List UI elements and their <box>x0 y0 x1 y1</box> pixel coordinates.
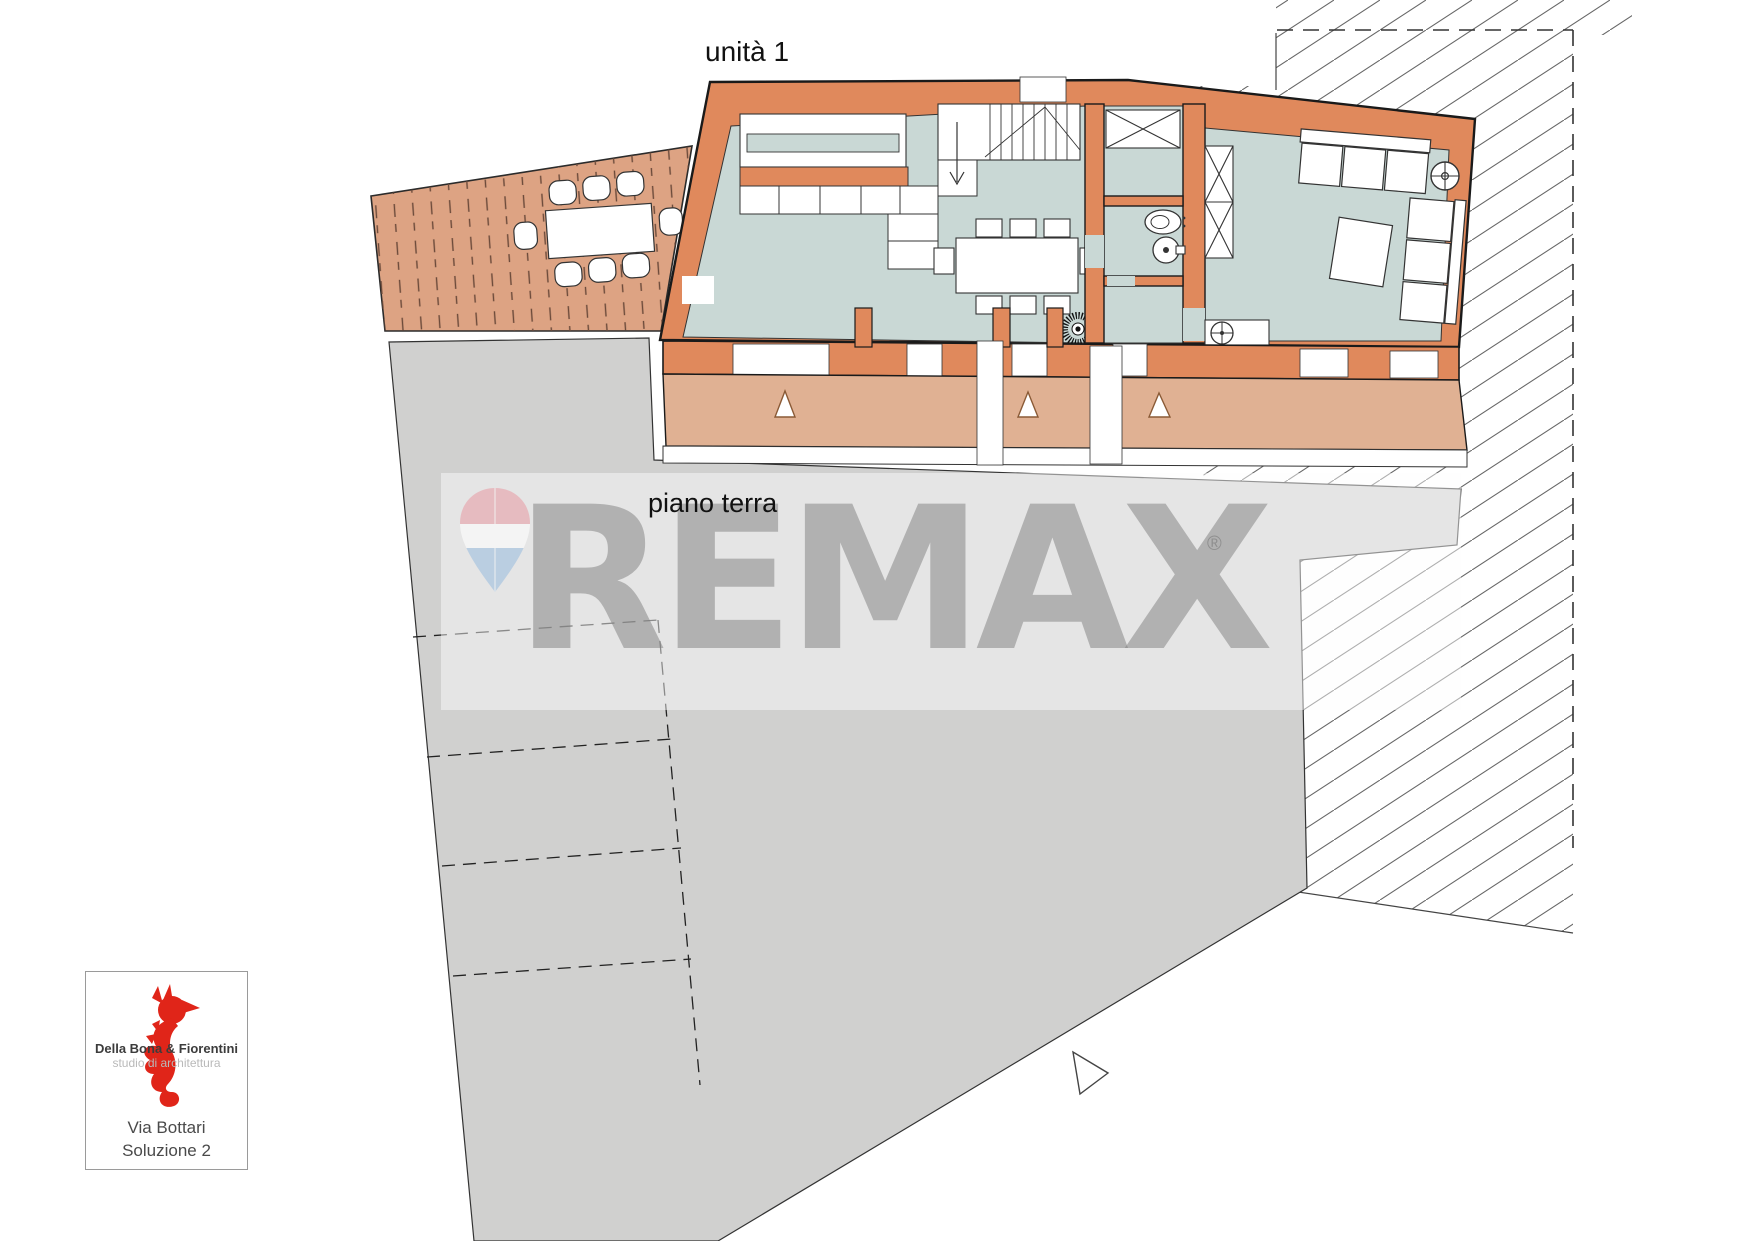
tall-wardrobe-icon <box>1205 146 1233 258</box>
architect-logo-box: Della Bona & Fiorentini studio di archit… <box>85 971 248 1170</box>
project-solution: Soluzione 2 <box>86 1141 247 1161</box>
coffee-table-icon <box>1329 217 1392 287</box>
terrace-step-2 <box>1090 346 1122 464</box>
deck-door-opening <box>682 276 714 304</box>
top-window-opening <box>1020 77 1066 102</box>
wood-deck <box>371 146 692 331</box>
ceiling-fan-icon <box>1431 162 1459 190</box>
door-opening-hall <box>1085 235 1104 268</box>
kitchen-top-counter <box>740 114 908 186</box>
north-triangle-icon <box>1073 1052 1108 1094</box>
door-opening-living <box>1183 308 1205 341</box>
sofa-icon <box>1297 129 1431 194</box>
wardrobe-icon <box>1106 110 1180 148</box>
floor-label: piano terra <box>648 488 777 519</box>
registered-mark: ® <box>1207 533 1222 556</box>
unit-label: unità 1 <box>705 36 789 68</box>
door-opening-bath <box>1107 276 1135 286</box>
project-street: Via Bottari <box>86 1118 247 1138</box>
sofa-right-icon <box>1400 196 1466 324</box>
floor-drain-icon <box>1211 322 1233 344</box>
studio-name: Della Bona & Fiorentini <box>86 1041 247 1056</box>
shelf-with-drain <box>1205 320 1269 345</box>
floorplan-page: unità 1 REMAX ® piano terra Della Bona &… <box>0 0 1755 1241</box>
building-unit-1 <box>660 77 1475 467</box>
remax-wordmark: REMAX <box>515 481 1266 679</box>
remax-watermark: REMAX ® <box>441 473 1461 710</box>
terrace-step-1 <box>977 341 1003 465</box>
studio-subtitle: studio di architettura <box>86 1056 247 1070</box>
